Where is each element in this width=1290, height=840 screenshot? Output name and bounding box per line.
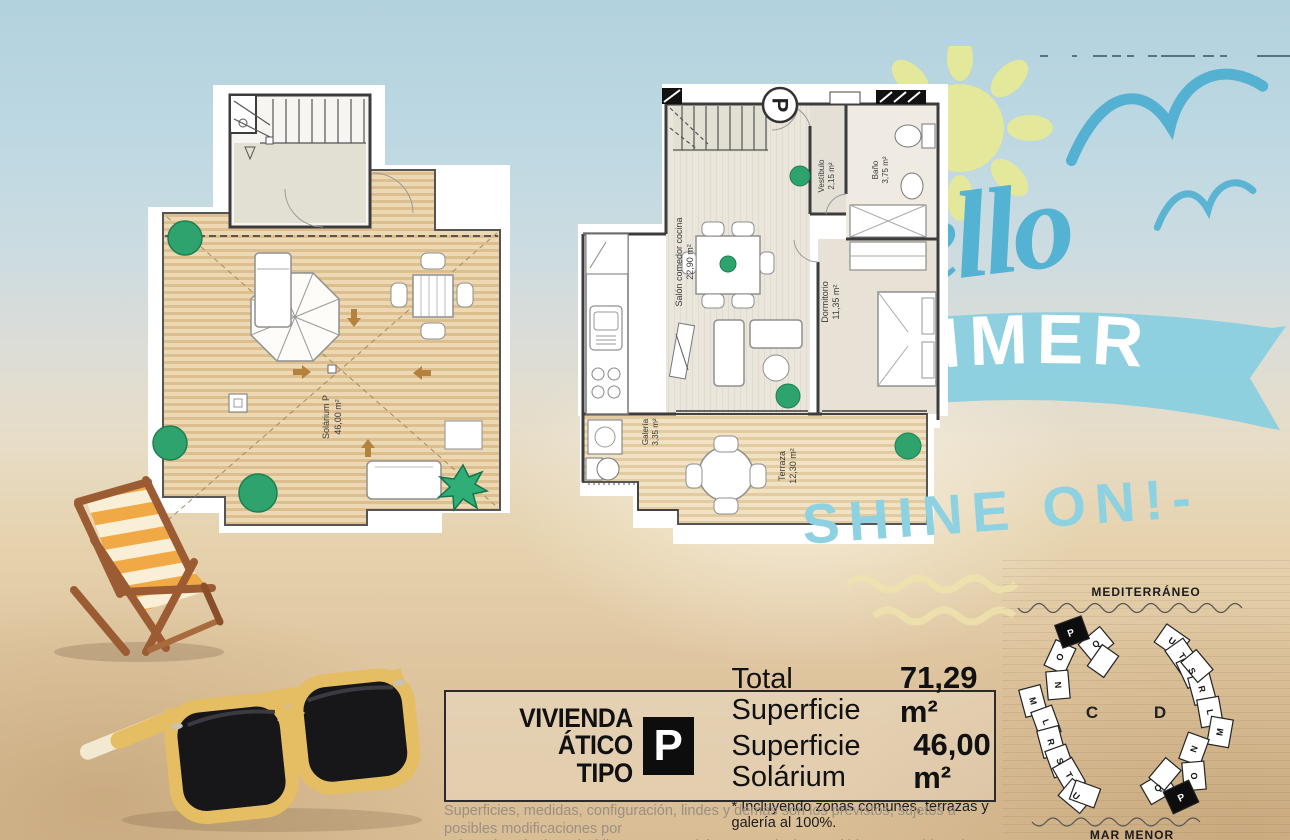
vestibulo-label: Vestíbulo (817, 159, 826, 192)
superficie-solarium-value: 46,00 m² (913, 728, 994, 795)
svg-text:O: O (1189, 772, 1200, 780)
total-superficie-label: Total Superficie (732, 664, 882, 727)
deck-fixture (229, 394, 247, 412)
solarium-area: 46,00 m² (333, 399, 343, 435)
superficie-solarium-label: Superficie Solárium (732, 731, 896, 794)
terraza-label: Terraza (777, 451, 787, 481)
legal-disclaimer: Superficies, medidas, configuración, lin… (444, 803, 1004, 840)
total-superficie-value: 71,29 m² (900, 661, 994, 728)
vestibule-floor (810, 104, 846, 214)
deck-chair-image (34, 470, 244, 665)
plant (776, 384, 800, 408)
kitchen (586, 234, 628, 414)
main-floor-plan: P (578, 84, 950, 550)
lagoon-label: MAR MENOR (1090, 828, 1174, 840)
vestibulo-area: 2,15 m² (827, 162, 836, 189)
plan-type-marker: P (763, 88, 797, 122)
drain-point (328, 365, 336, 373)
building-c-blocks (1019, 616, 1119, 813)
solarium-label: Solárium P (321, 395, 331, 439)
lagoon-wave (1032, 818, 1200, 826)
dormitorio-label: Dormitorio (820, 281, 830, 323)
site-location-plan: MEDITERRÁNEO (1002, 556, 1290, 840)
flyer-page: Hello SUMMER SHINE ON!- (0, 0, 1290, 840)
salon-label: Salón comedor cocina (674, 217, 684, 306)
side-table (445, 421, 482, 449)
dwelling-line2: ÁTICO TIPO (512, 732, 632, 787)
sun-lounger (255, 253, 291, 327)
building-d-label: D (1154, 703, 1166, 722)
building-c-label: C (1086, 703, 1098, 722)
type-letter-badge: P (643, 717, 694, 775)
bano-area: 3,75 m² (881, 156, 890, 183)
info-box: VIVIENDA ÁTICO TIPO P Total Superficie 7… (444, 690, 996, 802)
galeria-label: Galería (641, 418, 650, 445)
shoreline-wave (1018, 604, 1242, 613)
terraza-area: 12,30 m² (788, 448, 798, 484)
seagull-icon (1150, 168, 1260, 253)
galeria-area: 3,35 m² (651, 418, 660, 445)
salon-area: 22,90 m² (685, 244, 695, 280)
disclaimer-line1: Superficies, medidas, configuración, lin… (444, 803, 1004, 838)
plant (790, 166, 810, 186)
dwelling-type-block: VIVIENDA ÁTICO TIPO P (502, 705, 694, 788)
svg-text:N: N (1053, 681, 1064, 688)
svg-text:P: P (768, 98, 793, 113)
sea-label: MEDITERRÁNEO (1091, 584, 1200, 599)
plant (895, 433, 921, 459)
sunglasses-image (72, 648, 442, 838)
dormitorio-area: 11,35 m² (831, 285, 841, 320)
bano-label: Baño (871, 160, 880, 179)
dwelling-line1: VIVIENDA (512, 705, 632, 733)
